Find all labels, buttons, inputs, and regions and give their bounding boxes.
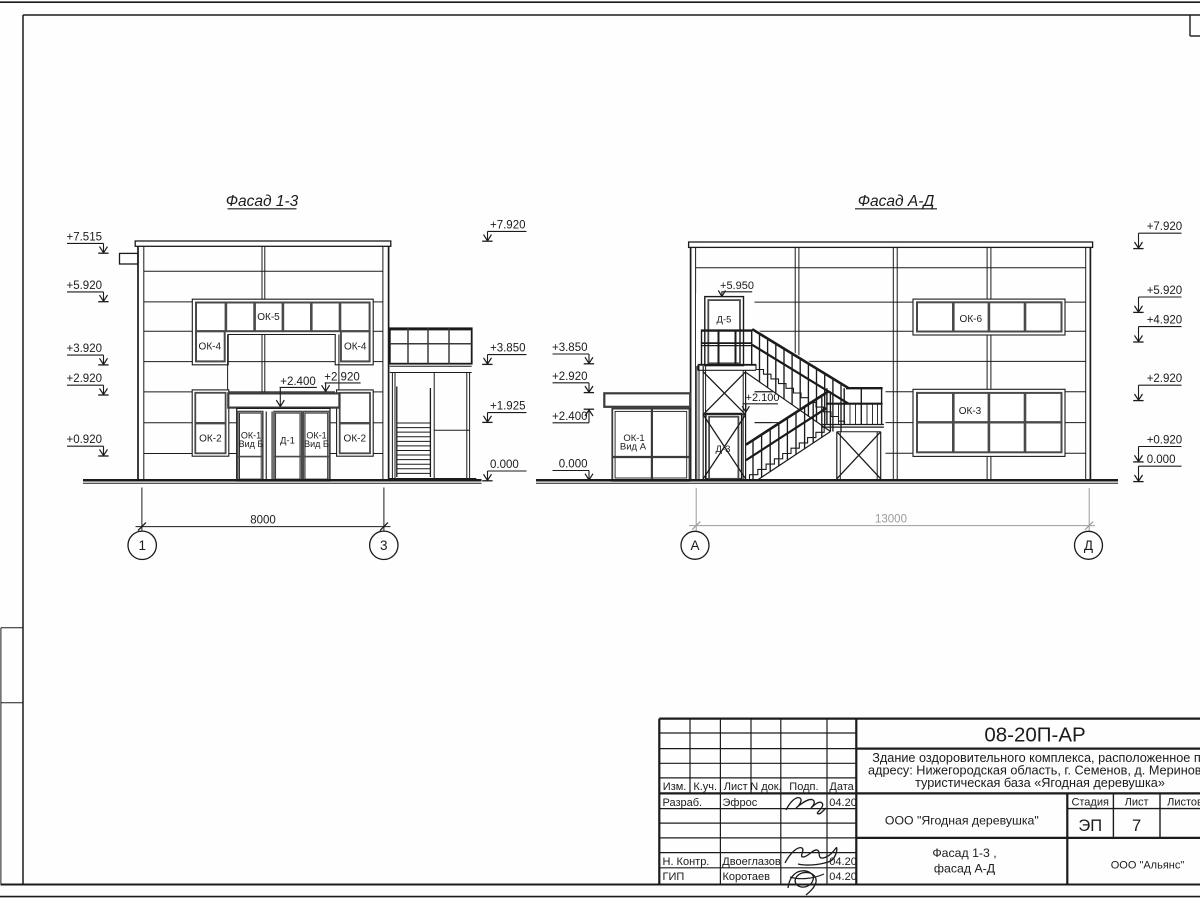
svg-text:Фасад 1-3: Фасад 1-3 <box>226 193 299 210</box>
svg-text:+0.920: +0.920 <box>67 434 103 446</box>
svg-text:К.уч.: К.уч. <box>693 781 717 793</box>
svg-text:Коротаев: Коротаев <box>723 871 771 883</box>
svg-text:Разраб.: Разраб. <box>663 797 703 809</box>
svg-text:ОК-4: ОК-4 <box>344 342 367 353</box>
svg-text:Д: Д <box>1084 538 1093 553</box>
svg-text:+2.400: +2.400 <box>280 376 316 388</box>
svg-text:Листов: Листов <box>1167 797 1200 809</box>
svg-text:+7.920: +7.920 <box>1147 221 1183 233</box>
svg-text:туристическая база «Ягодная де: туристическая база «Ягодная деревушка» <box>915 776 1165 790</box>
svg-text:Д-5: Д-5 <box>717 315 732 326</box>
svg-text:3: 3 <box>380 538 388 553</box>
svg-text:Изм.: Изм. <box>663 781 687 793</box>
svg-text:Эфрос: Эфрос <box>723 797 758 809</box>
svg-text:+2.920: +2.920 <box>67 373 103 385</box>
svg-text:7: 7 <box>1132 817 1141 835</box>
svg-text:+7.515: +7.515 <box>67 231 103 243</box>
svg-text:+2.920: +2.920 <box>324 372 360 384</box>
svg-text:Двоеглазов: Двоеглазов <box>722 856 781 868</box>
svg-text:0.000: 0.000 <box>1147 454 1176 466</box>
svg-text:0.000: 0.000 <box>559 459 588 471</box>
svg-text:+5.920: +5.920 <box>1147 285 1183 297</box>
svg-text:Фасад А-Д: Фасад А-Д <box>858 193 935 210</box>
svg-text:04.20: 04.20 <box>829 871 857 883</box>
svg-text:+2.100: +2.100 <box>746 392 780 404</box>
svg-text:0.000: 0.000 <box>490 459 519 471</box>
svg-text:ГИП: ГИП <box>663 871 685 883</box>
svg-text:ОК-2: ОК-2 <box>199 434 222 445</box>
svg-text:ОК-5: ОК-5 <box>257 312 280 323</box>
svg-text:13000: 13000 <box>875 514 907 526</box>
svg-text:Подп.: Подп. <box>789 781 818 793</box>
svg-text:8000: 8000 <box>250 515 276 527</box>
svg-text:Лист: Лист <box>724 781 748 793</box>
svg-text:Стадия: Стадия <box>1071 797 1109 809</box>
svg-text:Вид Б: Вид Б <box>304 439 329 449</box>
svg-text:1: 1 <box>138 538 146 553</box>
svg-text:Фасад 1-3 ,: Фасад 1-3 , <box>932 846 996 860</box>
svg-text:Д-1: Д-1 <box>280 436 295 447</box>
svg-text:фасад А-Д: фасад А-Д <box>934 861 996 875</box>
svg-text:+3.920: +3.920 <box>67 343 103 355</box>
svg-text:ООО "Ягодная деревушка": ООО "Ягодная деревушка" <box>885 814 1039 828</box>
svg-text:+2.400: +2.400 <box>552 411 588 423</box>
svg-text:ООО "Альянс": ООО "Альянс" <box>1111 859 1185 871</box>
svg-text:Дата: Дата <box>829 781 854 793</box>
svg-text:Лист: Лист <box>1125 797 1149 809</box>
svg-text:Вид А: Вид А <box>620 442 647 453</box>
svg-text:+7.920: +7.920 <box>490 219 526 231</box>
svg-text:+3.850: +3.850 <box>490 343 526 355</box>
svg-text:+0.920: +0.920 <box>1147 435 1183 447</box>
svg-text:ЭП: ЭП <box>1078 817 1102 835</box>
svg-text:ОК-2: ОК-2 <box>344 434 367 445</box>
svg-text:ОК-4: ОК-4 <box>199 342 222 353</box>
svg-text:ОК-6: ОК-6 <box>960 314 983 325</box>
svg-text:Вид Б: Вид Б <box>239 439 264 449</box>
svg-text:+1.925: +1.925 <box>490 401 526 413</box>
svg-text:+5.920: +5.920 <box>67 280 103 292</box>
svg-text:+2.920: +2.920 <box>1147 373 1183 385</box>
svg-text:N док.: N док. <box>750 781 781 793</box>
svg-text:+4.920: +4.920 <box>1147 315 1183 327</box>
svg-text:Н. Контр.: Н. Контр. <box>663 856 710 868</box>
svg-text:ОК-3: ОК-3 <box>959 406 982 417</box>
svg-text:+2.920: +2.920 <box>552 371 588 383</box>
svg-text:А: А <box>690 538 699 553</box>
svg-text:08-20П-АР: 08-20П-АР <box>984 724 1085 747</box>
svg-text:04.20: 04.20 <box>829 797 857 809</box>
svg-text:+3.850: +3.850 <box>552 342 588 354</box>
